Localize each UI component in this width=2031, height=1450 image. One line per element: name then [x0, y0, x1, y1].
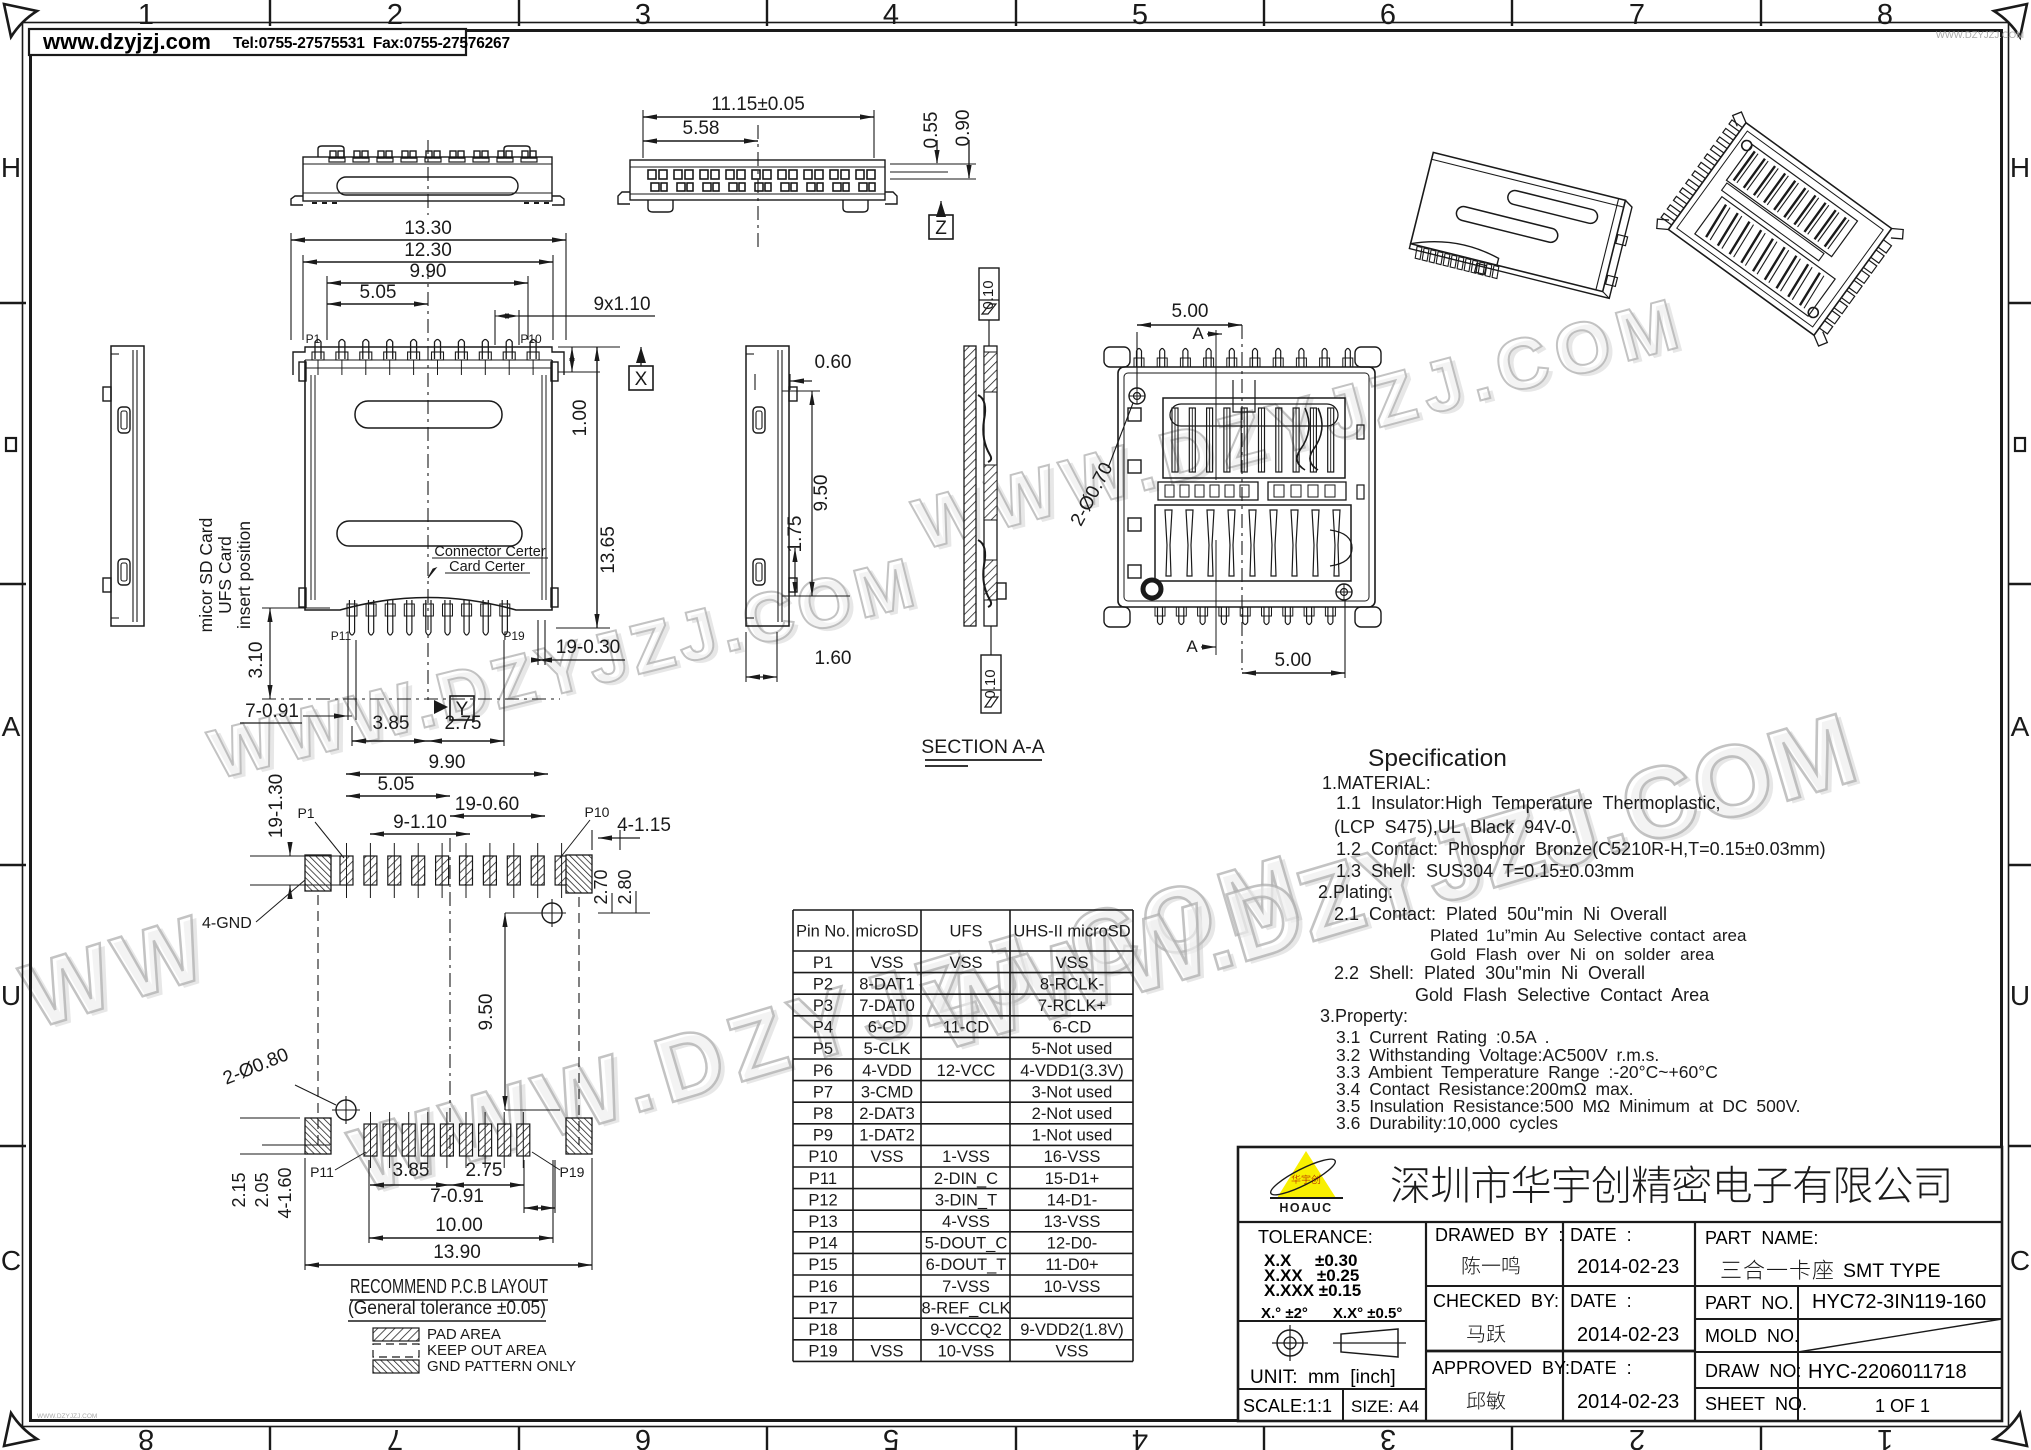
svg-text:HOAUC: HOAUC — [1279, 1201, 1332, 1215]
svg-text:4-VDD1(3.3V): 4-VDD1(3.3V) — [1020, 1062, 1124, 1080]
svg-text:P7: P7 — [813, 1083, 833, 1101]
svg-text:9.90: 9.90 — [429, 752, 466, 773]
svg-text:7: 7 — [1629, 0, 1645, 31]
svg-text:2.75: 2.75 — [445, 713, 482, 734]
svg-text:8-REF_CLK: 8-REF_CLK — [922, 1299, 1011, 1317]
svg-text:6: 6 — [635, 1423, 651, 1450]
svg-text:Tel:0755-27575531 Fax:0755-27: Tel:0755-27575531 Fax:0755-27576267 — [233, 35, 510, 52]
svg-text:9.50: 9.50 — [811, 475, 832, 512]
svg-text:3: 3 — [635, 0, 651, 31]
svg-text:3.1 Current Rating :0.5A .: 3.1 Current Rating :0.5A . — [1336, 1027, 1549, 1047]
svg-text:2-DAT3: 2-DAT3 — [859, 1105, 915, 1123]
svg-text:APPROVED BY:: APPROVED BY: — [1432, 1358, 1570, 1378]
svg-text:X.° ±2° X.X° ±0.5°: X.° ±2° X.X° ±0.5° — [1261, 1305, 1402, 1322]
svg-text:7-VSS: 7-VSS — [942, 1278, 990, 1296]
svg-text:3: 3 — [1380, 1423, 1396, 1450]
svg-text:UFS: UFS — [950, 923, 983, 941]
svg-text:P1: P1 — [297, 805, 314, 821]
svg-text:www.dzyjzj.com: www.dzyjzj.com — [42, 29, 211, 54]
svg-text:5-CLK: 5-CLK — [864, 1040, 911, 1058]
svg-text:19-1.30: 19-1.30 — [266, 774, 287, 838]
svg-text:9-VCCQ2: 9-VCCQ2 — [930, 1321, 1002, 1339]
svg-text:5.00: 5.00 — [1172, 301, 1209, 322]
svg-text:10-VSS: 10-VSS — [1044, 1278, 1101, 1296]
svg-text:10-VSS: 10-VSS — [938, 1343, 995, 1361]
svg-text:16-VSS: 16-VSS — [1044, 1148, 1101, 1166]
svg-text:2-Ø0.70: 2-Ø0.70 — [1067, 459, 1118, 529]
svg-text:5-Not used: 5-Not used — [1032, 1040, 1113, 1058]
svg-text:VSS: VSS — [1055, 954, 1088, 972]
svg-text:8-RCLK-: 8-RCLK- — [1040, 975, 1104, 993]
svg-text:11.15±0.05: 11.15±0.05 — [711, 94, 805, 115]
svg-text:DRAWED BY :: DRAWED BY : — [1435, 1225, 1563, 1245]
svg-text:0.55: 0.55 — [921, 112, 942, 149]
svg-text:HYC72-3IN119-160: HYC72-3IN119-160 — [1812, 1291, 1986, 1313]
svg-text:WWW.DZYJZJ.COM: WWW.DZYJZJ.COM — [1936, 30, 2024, 41]
svg-text:P11: P11 — [809, 1170, 837, 1188]
svg-text:4-1.15: 4-1.15 — [617, 815, 671, 836]
svg-text:Plated 1u”min Au Selective con: Plated 1u”min Au Selective contact area — [1430, 926, 1747, 945]
svg-text:1.60: 1.60 — [815, 648, 852, 669]
svg-text:P16: P16 — [808, 1278, 837, 1296]
svg-text:DATE :: DATE : — [1570, 1291, 1632, 1311]
svg-text:7-DAT0: 7-DAT0 — [859, 997, 915, 1015]
svg-text:1-DAT2: 1-DAT2 — [859, 1127, 915, 1145]
svg-text:2.80: 2.80 — [615, 869, 635, 904]
svg-text:12-D0-: 12-D0- — [1047, 1235, 1097, 1253]
svg-text:1.75: 1.75 — [785, 516, 806, 553]
svg-text:5.05: 5.05 — [360, 282, 397, 303]
svg-text:U: U — [1, 980, 21, 1011]
svg-text:Z: Z — [935, 218, 947, 239]
svg-text:P13: P13 — [808, 1213, 837, 1231]
svg-text:A: A — [2, 711, 21, 742]
svg-text:P14: P14 — [808, 1235, 837, 1253]
svg-text:KEEP OUT AREA: KEEP OUT AREA — [427, 1342, 547, 1359]
svg-text:0.10: 0.10 — [982, 669, 999, 698]
svg-text:2.75: 2.75 — [466, 1160, 503, 1181]
svg-text:P5: P5 — [813, 1040, 833, 1058]
svg-text:P3: P3 — [813, 997, 833, 1015]
svg-text:P10: P10 — [585, 804, 610, 820]
svg-text:VSS: VSS — [870, 1148, 903, 1166]
svg-text:Pin No.: Pin No. — [796, 923, 850, 941]
svg-text:DRAW NO:: DRAW NO: — [1705, 1361, 1801, 1381]
svg-text:8: 8 — [138, 1423, 154, 1450]
svg-text:14-D1-: 14-D1- — [1047, 1191, 1097, 1209]
svg-text:P9: P9 — [813, 1127, 833, 1145]
svg-text:2.Plating:: 2.Plating: — [1318, 882, 1393, 902]
svg-text:UFS Card: UFS Card — [215, 536, 235, 614]
svg-text:C: C — [2010, 1245, 2030, 1276]
svg-text:0.60: 0.60 — [815, 352, 852, 373]
svg-text:U: U — [2010, 980, 2030, 1011]
svg-text:2.2 Shell: Plated 30u''min Ni: 2.2 Shell: Plated 30u''min Ni Overall — [1334, 963, 1645, 983]
svg-text:P19: P19 — [808, 1343, 837, 1361]
svg-text:DATE :: DATE : — [1570, 1225, 1632, 1245]
svg-text:4-VDD: 4-VDD — [862, 1062, 912, 1080]
svg-text:Gold Flash over Ni on solder a: Gold Flash over Ni on solder area — [1430, 945, 1715, 964]
svg-text:8-DAT1: 8-DAT1 — [859, 975, 915, 993]
svg-text:4: 4 — [1132, 1423, 1148, 1450]
svg-text:3.85: 3.85 — [393, 1160, 430, 1181]
svg-text:2.15: 2.15 — [229, 1172, 249, 1207]
svg-text:2-Ø0.80: 2-Ø0.80 — [220, 1044, 292, 1089]
svg-text:1.3 Shell: SUS304 T=0.15±0.03m: 1.3 Shell: SUS304 T=0.15±0.03mm — [1336, 861, 1634, 881]
svg-text:P10: P10 — [520, 332, 542, 346]
svg-text:2-DIN_C: 2-DIN_C — [934, 1170, 998, 1188]
svg-text:P6: P6 — [813, 1062, 833, 1080]
svg-text:11-D0+: 11-D0+ — [1045, 1256, 1098, 1274]
svg-text:P1: P1 — [306, 332, 321, 346]
svg-text:5: 5 — [1132, 0, 1148, 31]
svg-text:P4: P4 — [813, 1019, 833, 1037]
svg-text:RECOMMEND P.C.B LAYOUT: RECOMMEND P.C.B LAYOUT — [350, 1276, 548, 1298]
svg-text:10.00: 10.00 — [435, 1215, 483, 1236]
svg-text:Gold Flash Selective Contact A: Gold Flash Selective Contact Area — [1415, 985, 1710, 1005]
svg-text:UHS-II microSD: UHS-II microSD — [1013, 923, 1130, 941]
svg-text:VSS: VSS — [870, 1343, 903, 1361]
svg-text:5.58: 5.58 — [683, 118, 720, 139]
svg-text:1: 1 — [138, 0, 154, 31]
svg-text:6-CD: 6-CD — [868, 1019, 907, 1037]
svg-text:VSS: VSS — [949, 954, 982, 972]
svg-text:12-VCC: 12-VCC — [937, 1062, 996, 1080]
svg-text:1 OF 1: 1 OF 1 — [1875, 1396, 1930, 1416]
svg-text:4-GND: 4-GND — [202, 915, 252, 932]
svg-text:1: 1 — [1877, 1423, 1893, 1450]
svg-text:6-DOUT_T: 6-DOUT_T — [926, 1256, 1007, 1274]
svg-text:5-DOUT_C: 5-DOUT_C — [925, 1235, 1008, 1253]
svg-text:9x1.10: 9x1.10 — [593, 294, 650, 315]
svg-text:1.00: 1.00 — [570, 400, 591, 437]
svg-text:2014-02-23: 2014-02-23 — [1577, 1391, 1679, 1413]
svg-text:Specification: Specification — [1368, 745, 1507, 772]
svg-text:(LCP S475),UL Black 94V-0.: (LCP S475),UL Black 94V-0. — [1334, 817, 1576, 837]
svg-text:(General tolerance ±0.05): (General tolerance ±0.05) — [348, 1298, 546, 1319]
svg-text:6: 6 — [1380, 0, 1396, 31]
svg-text:3.Property:: 3.Property: — [1320, 1006, 1408, 1026]
svg-text:P17: P17 — [808, 1299, 837, 1317]
svg-text:11-CD: 11-CD — [943, 1019, 990, 1037]
svg-text:H: H — [2010, 152, 2030, 183]
svg-text:15-D1+: 15-D1+ — [1045, 1170, 1100, 1188]
svg-text:19-0.30: 19-0.30 — [556, 637, 620, 658]
svg-text:2.05: 2.05 — [252, 1172, 272, 1207]
svg-text:SIZE: A4: SIZE: A4 — [1351, 1397, 1419, 1416]
svg-text:3.10: 3.10 — [246, 642, 267, 679]
svg-text:4-1.60: 4-1.60 — [275, 1167, 295, 1218]
svg-text:PART NO.: PART NO. — [1705, 1293, 1793, 1313]
svg-text:P15: P15 — [808, 1256, 837, 1274]
svg-text:0.90: 0.90 — [953, 110, 974, 147]
svg-text:CHECKED BY:: CHECKED BY: — [1433, 1291, 1559, 1311]
svg-text:9.50: 9.50 — [476, 994, 497, 1031]
svg-text:P1: P1 — [813, 954, 833, 972]
svg-text:HYC-2206011718: HYC-2206011718 — [1808, 1361, 1967, 1383]
svg-text:4: 4 — [883, 0, 899, 31]
svg-text:2-Not used: 2-Not used — [1032, 1105, 1113, 1123]
svg-text:P8: P8 — [813, 1105, 833, 1123]
svg-text:P11: P11 — [310, 1164, 334, 1180]
svg-text:DATE :: DATE : — [1570, 1358, 1632, 1378]
svg-text:2.1 Contact: Plated 50u''min N: 2.1 Contact: Plated 50u''min Ni Overall — [1334, 904, 1667, 924]
svg-text:7: 7 — [387, 1423, 403, 1450]
svg-text:6-CD: 6-CD — [1053, 1019, 1092, 1037]
svg-text:13.65: 13.65 — [598, 526, 619, 574]
svg-text:SCALE:1:1: SCALE:1:1 — [1243, 1396, 1332, 1416]
svg-text:TOLERANCE:: TOLERANCE: — [1258, 1227, 1373, 1247]
svg-text:A: A — [1192, 324, 1204, 343]
svg-text:P2: P2 — [813, 975, 833, 993]
svg-text:A: A — [2011, 711, 2030, 742]
svg-text:1.1 Insulator:High Temperature: 1.1 Insulator:High Temperature Thermopla… — [1336, 793, 1721, 813]
svg-text:9-VDD2(1.8V): 9-VDD2(1.8V) — [1020, 1321, 1124, 1339]
svg-text:5.05: 5.05 — [378, 774, 415, 795]
svg-text:3-DIN_T: 3-DIN_T — [935, 1191, 997, 1209]
svg-text:X.XXX ±0.15: X.XXX ±0.15 — [1264, 1281, 1361, 1300]
svg-text:3-Not used: 3-Not used — [1032, 1083, 1113, 1101]
svg-text:GND PATTERN ONLY: GND PATTERN ONLY — [427, 1358, 576, 1375]
svg-text:1-Not used: 1-Not used — [1032, 1127, 1113, 1145]
svg-text:WWW.DZYJZJ.COM: WWW.DZYJZJ.COM — [37, 1413, 97, 1420]
svg-text:5: 5 — [883, 1423, 899, 1450]
svg-text:2.70: 2.70 — [591, 869, 611, 904]
svg-text:P19: P19 — [560, 1164, 585, 1180]
svg-text:1.2 Contact: Phosphor Bronze(C: 1.2 Contact: Phosphor Bronze(C5210R-H,T=… — [1336, 839, 1826, 859]
svg-text:P18: P18 — [808, 1321, 837, 1339]
svg-text:SECTION A-A: SECTION A-A — [921, 736, 1045, 758]
svg-text:3.6 Durability:10,000 cycles: 3.6 Durability:10,000 cycles — [1336, 1113, 1558, 1133]
svg-text:H: H — [1, 152, 21, 183]
svg-text:PAD AREA: PAD AREA — [427, 1326, 501, 1343]
svg-text:7-0.91: 7-0.91 — [245, 701, 299, 722]
svg-text:insert position: insert position — [234, 521, 254, 629]
svg-text:SMT TYPE: SMT TYPE — [1843, 1260, 1941, 1282]
svg-text:SHEET NO.: SHEET NO. — [1705, 1394, 1807, 1414]
svg-text:2014-02-23: 2014-02-23 — [1577, 1256, 1679, 1278]
svg-text:7-0.91: 7-0.91 — [430, 1186, 484, 1207]
svg-text:P19: P19 — [503, 629, 525, 643]
svg-text:A: A — [1186, 637, 1198, 656]
svg-text:2014-02-23: 2014-02-23 — [1577, 1324, 1679, 1346]
svg-text:13.30: 13.30 — [404, 218, 452, 239]
svg-text:VSS: VSS — [1055, 1343, 1088, 1361]
svg-text:P10: P10 — [808, 1148, 837, 1166]
svg-text:VSS: VSS — [870, 954, 903, 972]
svg-text:9-1.10: 9-1.10 — [393, 812, 447, 833]
svg-text:P12: P12 — [808, 1191, 837, 1209]
svg-text:1.MATERIAL:: 1.MATERIAL: — [1322, 773, 1431, 793]
svg-text:C: C — [1, 1245, 21, 1276]
svg-text:microSD: microSD — [855, 923, 918, 941]
svg-text:4-VSS: 4-VSS — [942, 1213, 990, 1231]
svg-text:3-CMD: 3-CMD — [861, 1083, 913, 1101]
svg-text:PART NAME:: PART NAME: — [1705, 1228, 1818, 1248]
svg-text:2: 2 — [387, 0, 403, 31]
svg-text:1-VSS: 1-VSS — [942, 1148, 990, 1166]
svg-text:13.90: 13.90 — [433, 1242, 481, 1263]
svg-text:13-VSS: 13-VSS — [1044, 1213, 1101, 1231]
svg-text:UNIT: mm [inch]: UNIT: mm [inch] — [1250, 1367, 1396, 1388]
svg-text:5.00: 5.00 — [1275, 650, 1312, 671]
svg-text:X: X — [635, 369, 648, 390]
svg-text:8: 8 — [1877, 0, 1893, 31]
svg-text:MOLD NO.: MOLD NO. — [1705, 1326, 1799, 1346]
svg-text:19-0.60: 19-0.60 — [455, 794, 519, 815]
svg-text:3.85: 3.85 — [373, 713, 410, 734]
svg-text:7-RCLK+: 7-RCLK+ — [1038, 997, 1106, 1015]
svg-text:2: 2 — [1629, 1423, 1645, 1450]
svg-text:micor SD Card: micor SD Card — [196, 518, 216, 633]
svg-text:12.30: 12.30 — [404, 240, 452, 261]
